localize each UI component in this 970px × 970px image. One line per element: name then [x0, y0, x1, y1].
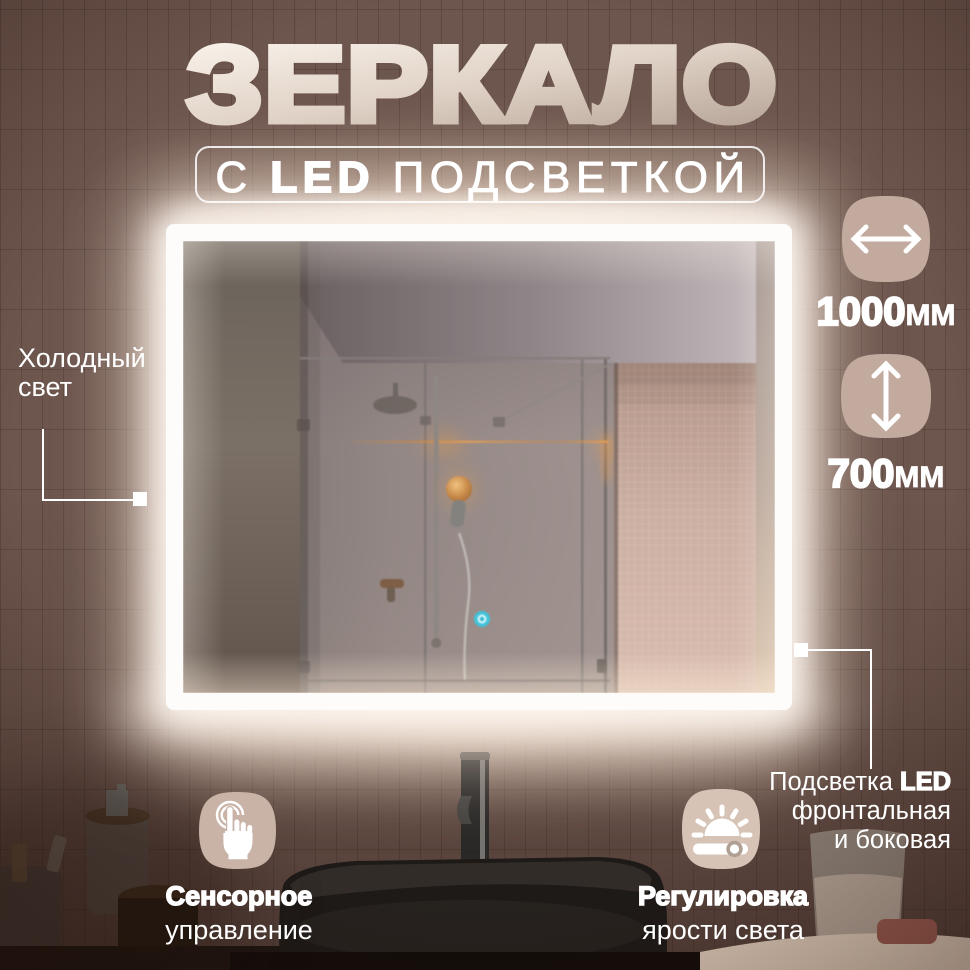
svg-text:ЗЕРКАЛО: ЗЕРКАЛО	[186, 25, 778, 144]
